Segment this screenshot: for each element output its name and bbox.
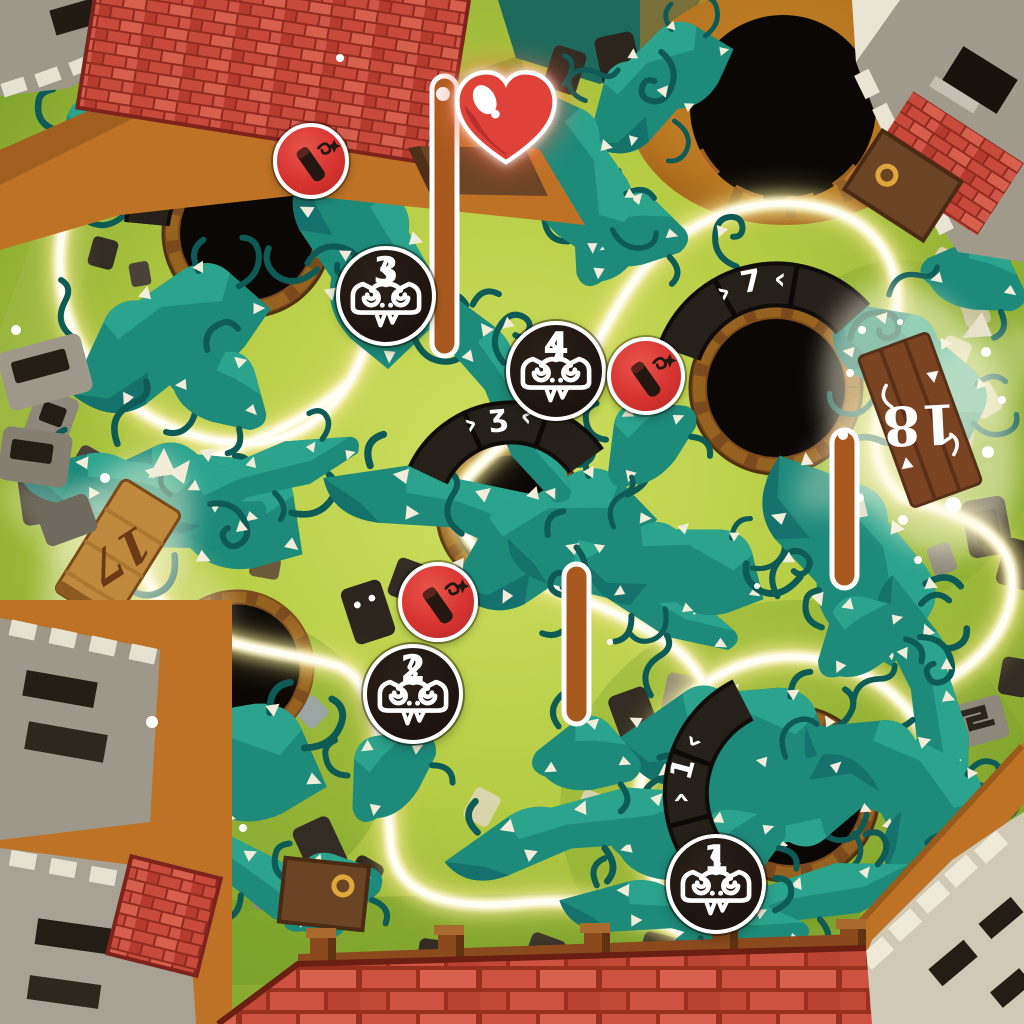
track-bar-center bbox=[564, 564, 589, 724]
mole-token-4[interactable]: 4 bbox=[506, 321, 606, 421]
track-bar-right bbox=[832, 430, 857, 588]
bomb-token[interactable] bbox=[398, 562, 478, 642]
dynamite-icon bbox=[629, 354, 676, 399]
dynamite-icon bbox=[295, 139, 341, 183]
mole-token-number: 4 bbox=[543, 325, 569, 367]
mole-token-number: 2 bbox=[400, 648, 426, 690]
mole-token-number: 1 bbox=[703, 838, 729, 880]
mole-token-number: 3 bbox=[373, 250, 399, 292]
mole-token-1[interactable]: 1 bbox=[666, 834, 766, 934]
plank-number: 18 bbox=[881, 391, 959, 459]
mole-token-3[interactable]: 3 bbox=[336, 246, 436, 346]
bomb-token[interactable] bbox=[273, 123, 349, 199]
mole-token-2[interactable]: 2 bbox=[363, 644, 463, 744]
game-board: ›Σ‹ ›ʒ‹ ›7‹ ›1‹ 17 bbox=[0, 0, 1024, 1024]
bomb-token[interactable] bbox=[607, 337, 685, 415]
dynamite-icon bbox=[421, 579, 470, 626]
heart-icon[interactable] bbox=[448, 62, 564, 174]
